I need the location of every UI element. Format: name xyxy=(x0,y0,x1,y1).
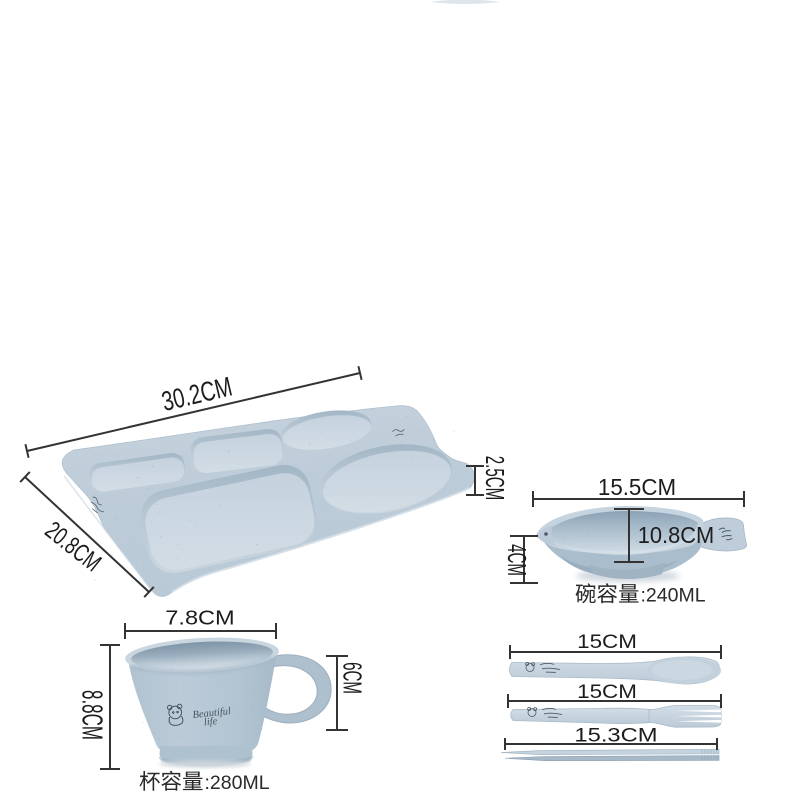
svg-text:life: life xyxy=(203,716,218,728)
svg-text:4CM: 4CM xyxy=(502,544,531,576)
svg-text:7.8CM: 7.8CM xyxy=(165,606,234,629)
svg-text:15CM: 15CM xyxy=(577,632,637,653)
svg-text:15.3CM: 15.3CM xyxy=(574,725,657,746)
svg-text:10.8CM: 10.8CM xyxy=(638,522,714,548)
svg-text:2.5CM: 2.5CM xyxy=(480,456,509,500)
svg-text:8.8CM: 8.8CM xyxy=(75,690,108,740)
svg-text::240ML: :240ML xyxy=(641,585,706,607)
svg-text:15CM: 15CM xyxy=(577,682,637,703)
svg-text::280ML: :280ML xyxy=(205,772,270,794)
svg-text:15.5CM: 15.5CM xyxy=(598,473,676,500)
svg-text:6CM: 6CM xyxy=(337,662,366,694)
